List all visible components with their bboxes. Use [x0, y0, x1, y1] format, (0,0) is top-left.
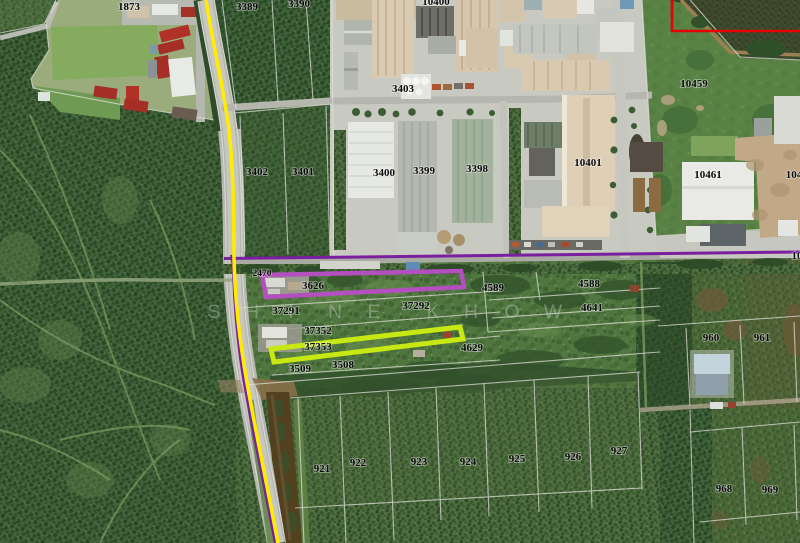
svg-text:10401: 10401 — [574, 157, 602, 169]
svg-text:3390: 3390 — [288, 0, 311, 10]
svg-text:923: 923 — [411, 456, 428, 468]
svg-text:961: 961 — [754, 332, 771, 344]
svg-text:921: 921 — [314, 463, 331, 475]
svg-text:H: H — [464, 301, 478, 323]
svg-text:4588: 4588 — [578, 278, 601, 290]
svg-text:E: E — [367, 301, 380, 323]
svg-text:2470: 2470 — [253, 269, 272, 279]
svg-text:960: 960 — [703, 332, 720, 344]
svg-text:10461: 10461 — [694, 169, 722, 181]
svg-text:37292: 37292 — [402, 300, 430, 312]
svg-text:10459: 10459 — [680, 78, 708, 90]
svg-text:W: W — [544, 301, 563, 323]
svg-text:O: O — [504, 301, 519, 323]
svg-text:N: N — [328, 301, 342, 323]
svg-text:3400: 3400 — [373, 167, 396, 179]
svg-text:104: 104 — [786, 169, 800, 181]
svg-text:S: S — [207, 301, 220, 323]
svg-text:969: 969 — [762, 484, 779, 496]
svg-text:3509: 3509 — [289, 363, 312, 375]
svg-text:3401: 3401 — [292, 166, 314, 178]
svg-text:922: 922 — [350, 457, 367, 469]
svg-text:3402: 3402 — [246, 166, 269, 178]
svg-text:3389: 3389 — [236, 1, 259, 13]
svg-text:4641: 4641 — [581, 302, 603, 314]
svg-text:10400: 10400 — [422, 0, 450, 8]
svg-text:37353: 37353 — [304, 341, 332, 353]
svg-text:3403: 3403 — [392, 83, 415, 95]
svg-text:10: 10 — [792, 250, 800, 262]
svg-text:4589: 4589 — [482, 282, 505, 294]
svg-text:1873: 1873 — [118, 1, 141, 13]
svg-text:3508: 3508 — [332, 359, 355, 371]
svg-text:924: 924 — [460, 456, 477, 468]
svg-text:37352: 37352 — [304, 325, 332, 337]
svg-text:925: 925 — [509, 453, 526, 465]
svg-text:3399: 3399 — [413, 165, 436, 177]
svg-text:H: H — [245, 301, 259, 323]
svg-text:4629: 4629 — [461, 342, 484, 354]
svg-text:3398: 3398 — [466, 163, 489, 175]
svg-text:37291: 37291 — [272, 305, 300, 317]
svg-text:926: 926 — [565, 451, 582, 463]
svg-text:927: 927 — [611, 445, 628, 457]
svg-text:968: 968 — [716, 483, 733, 495]
svg-text:3626: 3626 — [302, 280, 325, 292]
